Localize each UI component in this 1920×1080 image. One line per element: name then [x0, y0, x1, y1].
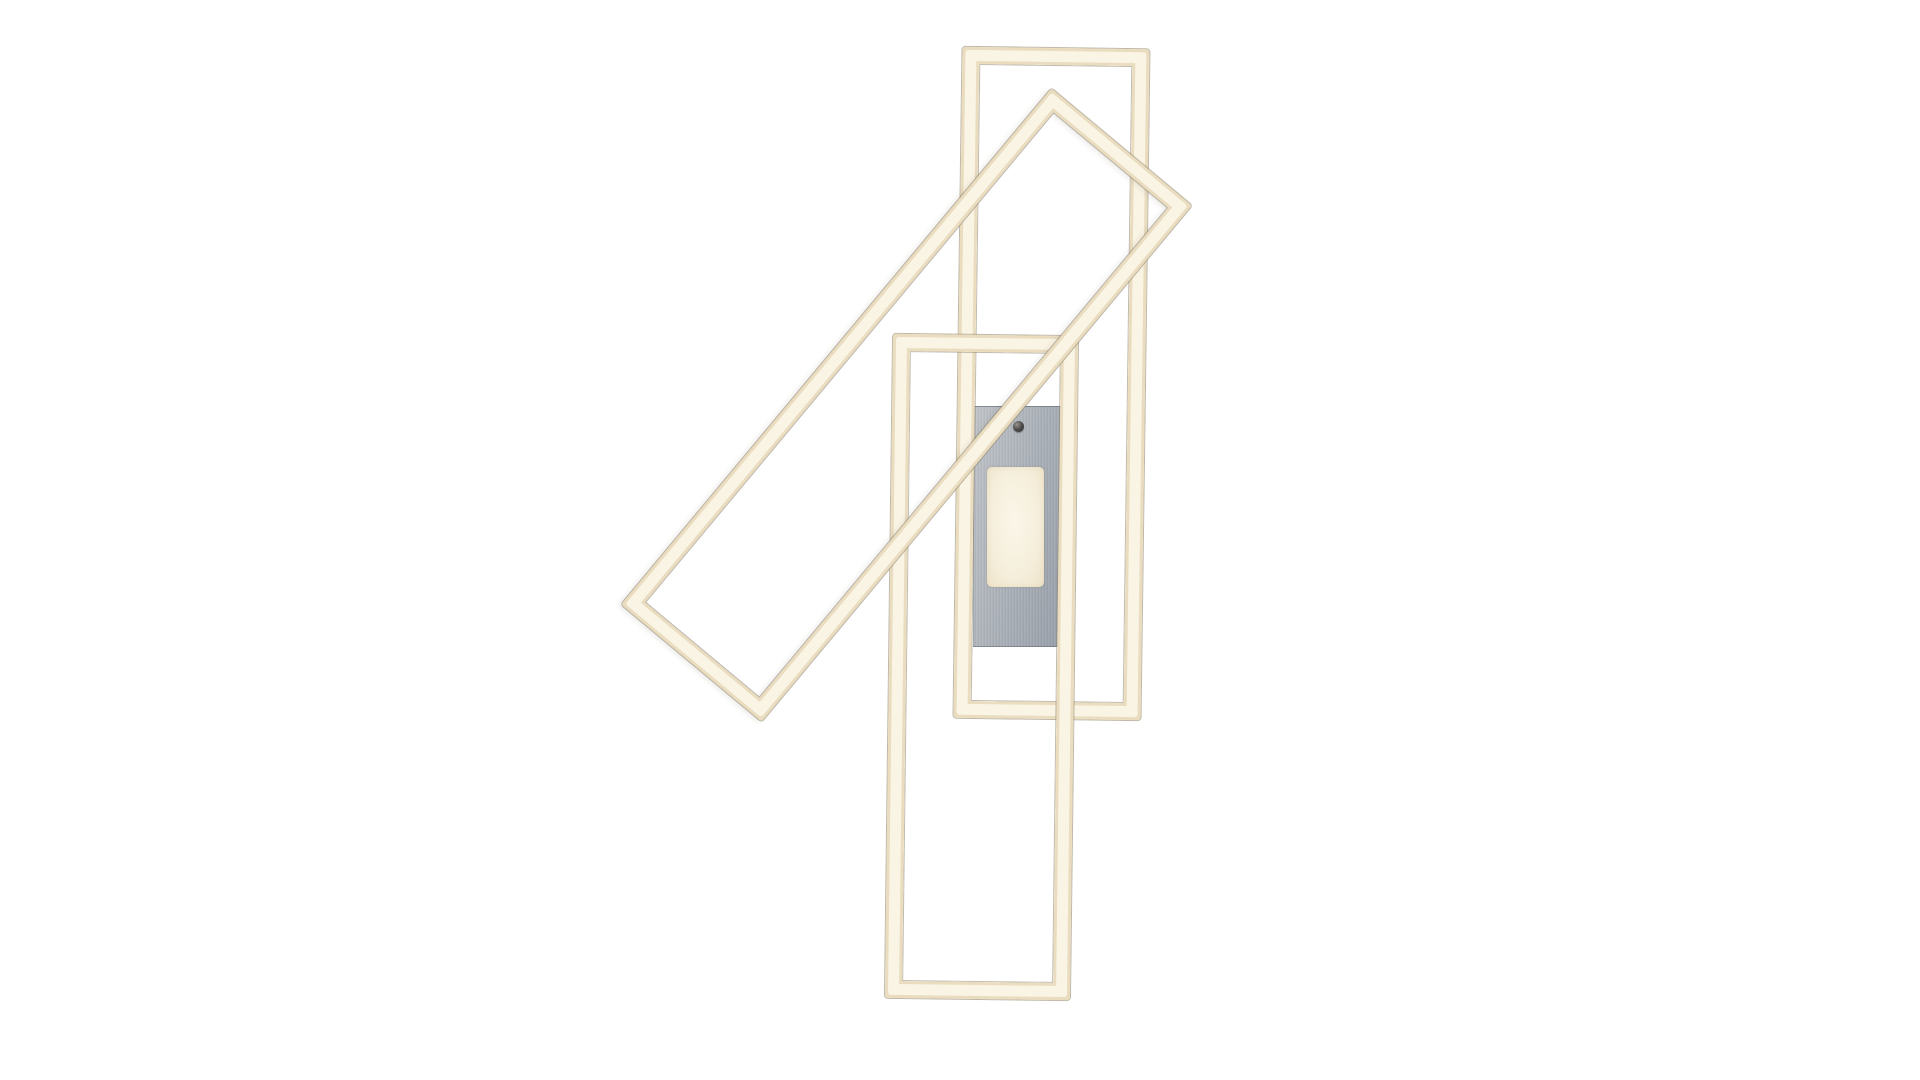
- product-photo-canvas: [0, 0, 1920, 1080]
